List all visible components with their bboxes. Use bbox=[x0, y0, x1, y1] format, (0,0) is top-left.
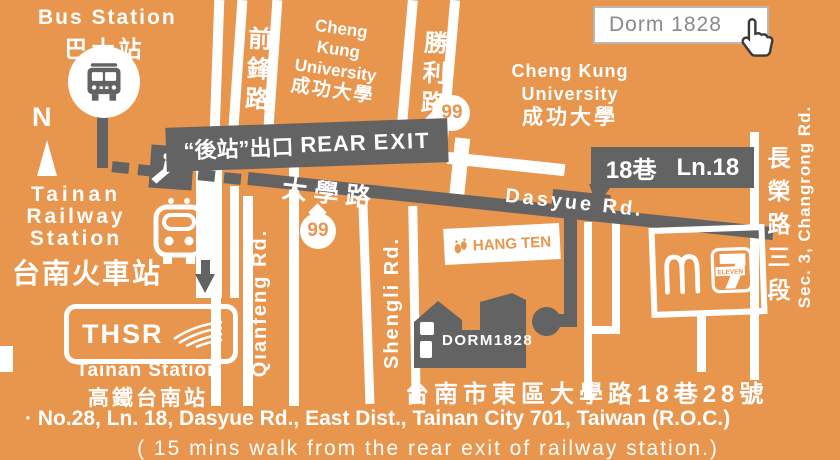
station-building bbox=[230, 186, 239, 298]
road-stub bbox=[0, 346, 13, 372]
dorm-building-icon: DORM1828 bbox=[412, 288, 540, 368]
mcdonalds-icon bbox=[662, 249, 702, 294]
address-en: · No.28, Ln. 18, Dasyue Rd., East Dist.,… bbox=[25, 407, 730, 431]
hangten-icon bbox=[452, 237, 468, 255]
road-vertical bbox=[697, 312, 706, 372]
thsr-swoosh-icon bbox=[172, 319, 224, 349]
lane18-road bbox=[564, 208, 577, 320]
changrong-road-label-en: Sec. 3, Changrong Rd. bbox=[795, 73, 817, 341]
thsr-sign: THSR bbox=[64, 304, 238, 364]
road-lane bbox=[612, 222, 620, 332]
route-dash bbox=[111, 161, 129, 174]
bus-icon bbox=[82, 60, 126, 104]
route-99-number: 99 bbox=[307, 220, 328, 242]
dorm-search-value: Dorm 1828 bbox=[609, 13, 722, 37]
tainan-dorm-map: N Bus Station 巴士站 前鋒路 勝利路 Cheng Kung Uni… bbox=[0, 0, 840, 460]
railway-line2: Railway bbox=[4, 206, 148, 228]
cursor-hand-icon[interactable] bbox=[736, 14, 778, 60]
route-dash bbox=[223, 172, 241, 185]
address-note: ( 15 mins walk from the rear exit of rai… bbox=[118, 437, 738, 460]
route-from-bus bbox=[97, 114, 108, 168]
route-dash bbox=[197, 169, 215, 182]
lane18-en: Ln.18 bbox=[677, 154, 740, 182]
qianfeng-road-label-en: Qianfeng Rd. bbox=[249, 223, 271, 383]
svg-text:ELEVEN: ELEVEN bbox=[717, 268, 743, 276]
ncku-right-line1: Cheng Kung bbox=[498, 60, 642, 83]
lane18-sign: 18巷 Ln.18 bbox=[591, 147, 754, 188]
station-bridge bbox=[449, 137, 470, 200]
bus-station-label-zh: 巴士站 bbox=[38, 30, 172, 64]
bus-station-label-en: Bus Station bbox=[38, 6, 172, 30]
compass-north-label: N bbox=[32, 102, 52, 133]
railway-line1: Tainan bbox=[4, 184, 148, 206]
ncku-label-top: Cheng Kung University 成功大學 bbox=[270, 10, 404, 110]
hang-ten-sign: HANG TEN bbox=[443, 223, 561, 265]
convenience-block: ELEVEN bbox=[648, 224, 767, 318]
shengli-road-label-en: Shengli Rd. bbox=[381, 223, 403, 383]
railway-station-label-en: Tainan Railway Station bbox=[4, 184, 148, 250]
road-shengli bbox=[359, 206, 375, 404]
rear-exit-banner: “後站”出口 REAR EXIT bbox=[165, 118, 448, 172]
thsr-label: THSR bbox=[82, 319, 164, 350]
compass-north-triangle bbox=[37, 140, 57, 176]
dorm-building-label: DORM1828 bbox=[442, 332, 533, 349]
rear-exit-zh: “後站”出口 bbox=[183, 129, 294, 165]
qianfeng-road-label-zh: 前鋒路 bbox=[236, 25, 276, 117]
ncku-label-right: Cheng Kung University 成功大學 bbox=[498, 60, 642, 129]
seven-eleven-icon: ELEVEN bbox=[709, 245, 755, 295]
down-arrow-icon bbox=[195, 274, 215, 293]
rear-exit-en: EXIT bbox=[373, 128, 431, 156]
lane18-zh: 18巷 bbox=[606, 150, 657, 185]
address-zh: 台南市東區大學路18巷28號 bbox=[405, 374, 768, 409]
ncku-right-line3: 成功大學 bbox=[498, 106, 642, 129]
hang-ten-label: HANG TEN bbox=[472, 233, 551, 254]
route-99-badge: 99 bbox=[300, 213, 336, 249]
road-vertical bbox=[210, 0, 225, 130]
railway-station-label-zh: 台南火車站 bbox=[2, 252, 172, 292]
railway-line3: Station bbox=[4, 228, 148, 250]
road-lane bbox=[584, 326, 620, 334]
ncku-right-line2: University bbox=[498, 83, 642, 106]
rear-exit-en-bold: REAR bbox=[300, 130, 367, 158]
thsr-station-label-en: Tainan Station bbox=[58, 360, 238, 382]
